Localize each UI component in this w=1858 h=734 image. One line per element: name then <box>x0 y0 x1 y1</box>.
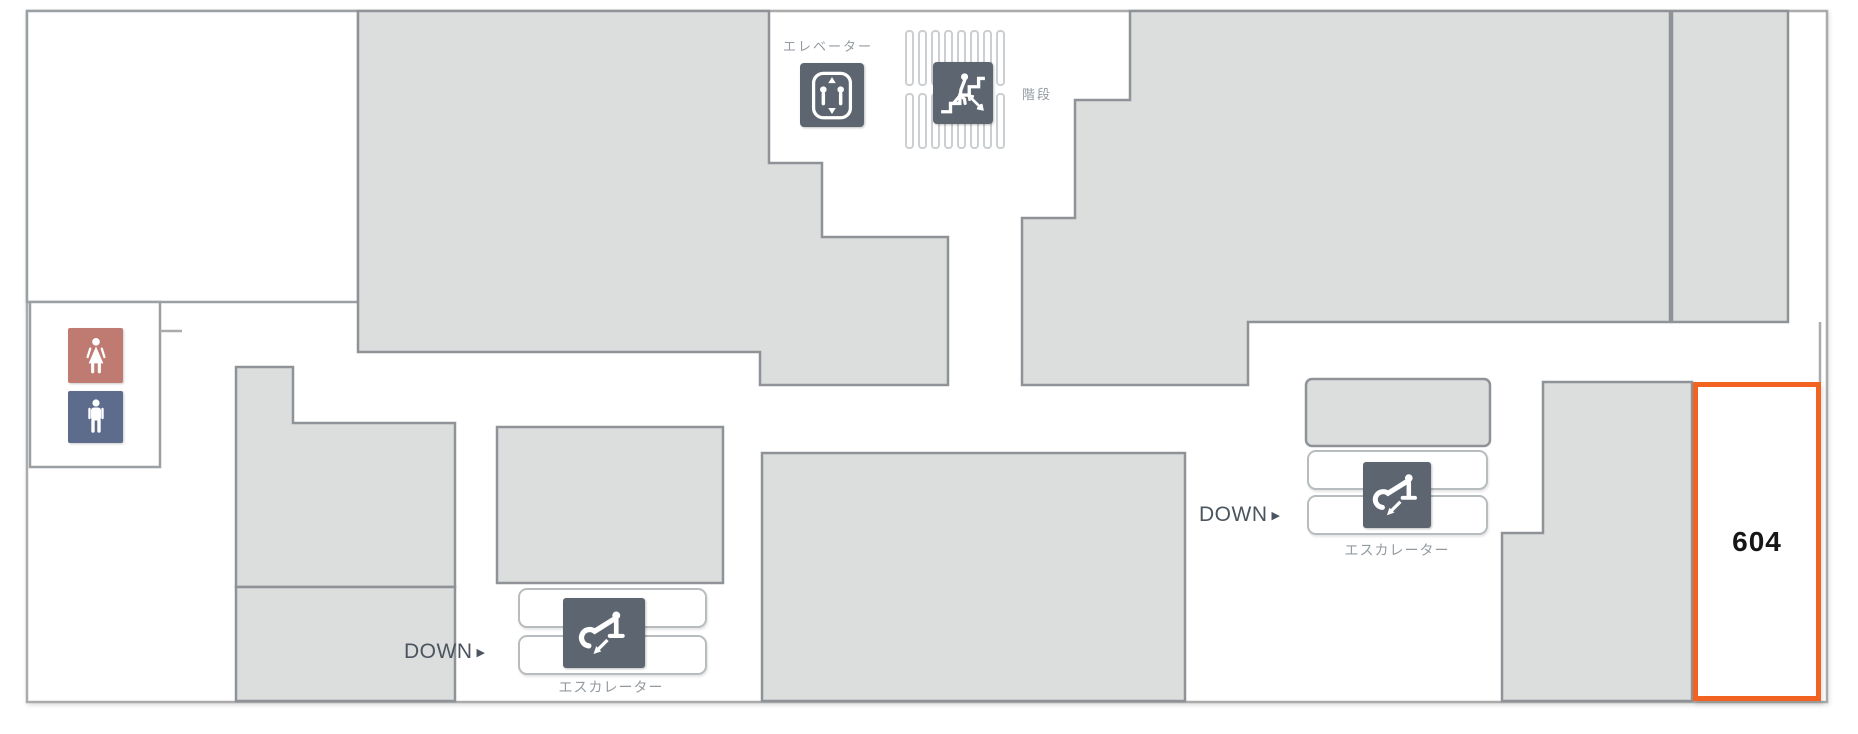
down-arrow-icon: ▶ <box>477 648 486 659</box>
room-number: 604 <box>1732 526 1782 558</box>
escalator-icon <box>563 598 645 668</box>
store-block-right-escalator <box>1306 379 1490 446</box>
store-block-bottom-center <box>762 453 1185 701</box>
down-label: DOWN <box>1199 503 1268 527</box>
store-block-top-right-corner <box>1672 11 1788 322</box>
room-604-highlighted[interactable]: 604 <box>1693 382 1821 701</box>
down-indicator-left: DOWN▶ <box>404 640 485 664</box>
elevator-label: エレベーター <box>783 36 873 55</box>
stairs-label: 階段 <box>1022 84 1052 103</box>
escalator-label-left: エスカレーター <box>540 677 682 697</box>
store-block-left-escalator <box>497 427 723 583</box>
men-restroom-icon <box>68 391 123 443</box>
elevator-icon <box>800 63 864 127</box>
women-restroom-icon <box>68 328 123 383</box>
escalator-label-right: エスカレーター <box>1326 540 1468 560</box>
down-label: DOWN <box>404 640 473 664</box>
floor-map: エレベーター 階段 <box>0 0 1858 734</box>
escalator-icon <box>1363 462 1431 528</box>
down-arrow-icon: ▶ <box>1272 511 1281 522</box>
stairs-icon <box>933 62 993 124</box>
room-top-left <box>27 11 358 302</box>
down-indicator-right: DOWN▶ <box>1199 503 1280 527</box>
